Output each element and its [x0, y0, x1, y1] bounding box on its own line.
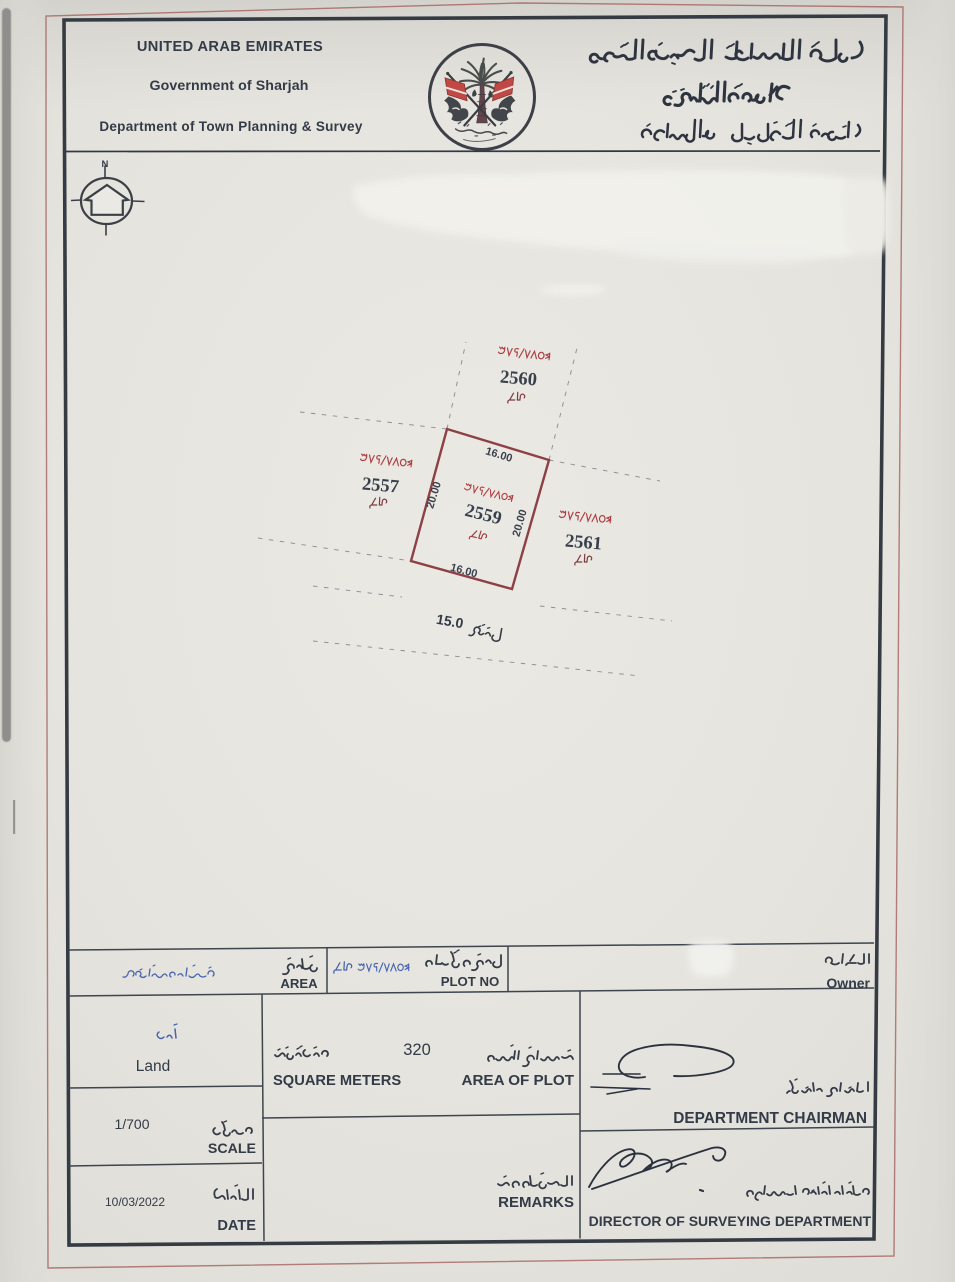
svg-text:AREA OF PLOT: AREA OF PLOT [462, 1072, 575, 1089]
svg-text:Land: Land [136, 1058, 170, 1075]
svg-text:10/03/2022: 10/03/2022 [105, 1195, 165, 1209]
svg-text:AREA: AREA [280, 976, 318, 991]
svg-text:PLOT NO: PLOT NO [441, 974, 500, 989]
svg-text:320: 320 [403, 1041, 431, 1059]
svg-text:2561: 2561 [564, 531, 603, 554]
svg-text:REMARKS: REMARKS [498, 1194, 574, 1211]
svg-text:2560: 2560 [499, 367, 538, 390]
svg-text:DATE: DATE [217, 1218, 256, 1234]
svg-text:SQUARE METERS: SQUARE METERS [273, 1073, 401, 1089]
svg-text:DIRECTOR OF SURVEYING DEPARTME: DIRECTOR OF SURVEYING DEPARTMENT [589, 1213, 872, 1229]
svg-text:Owner: Owner [826, 975, 870, 991]
svg-text:SCALE: SCALE [208, 1141, 256, 1157]
svg-text:1/700: 1/700 [114, 1116, 149, 1132]
svg-text:DEPARTMENT CHAIRMAN: DEPARTMENT CHAIRMAN [673, 1110, 867, 1127]
svg-text:UNITED ARAB EMIRATES: UNITED ARAB EMIRATES [137, 39, 323, 55]
svg-text:Government of Sharjah: Government of Sharjah [150, 78, 309, 94]
svg-text:N: N [102, 159, 109, 170]
svg-text:Department of Town Planning &: Department of Town Planning & Survey [99, 119, 363, 134]
svg-text:2557: 2557 [361, 474, 400, 497]
